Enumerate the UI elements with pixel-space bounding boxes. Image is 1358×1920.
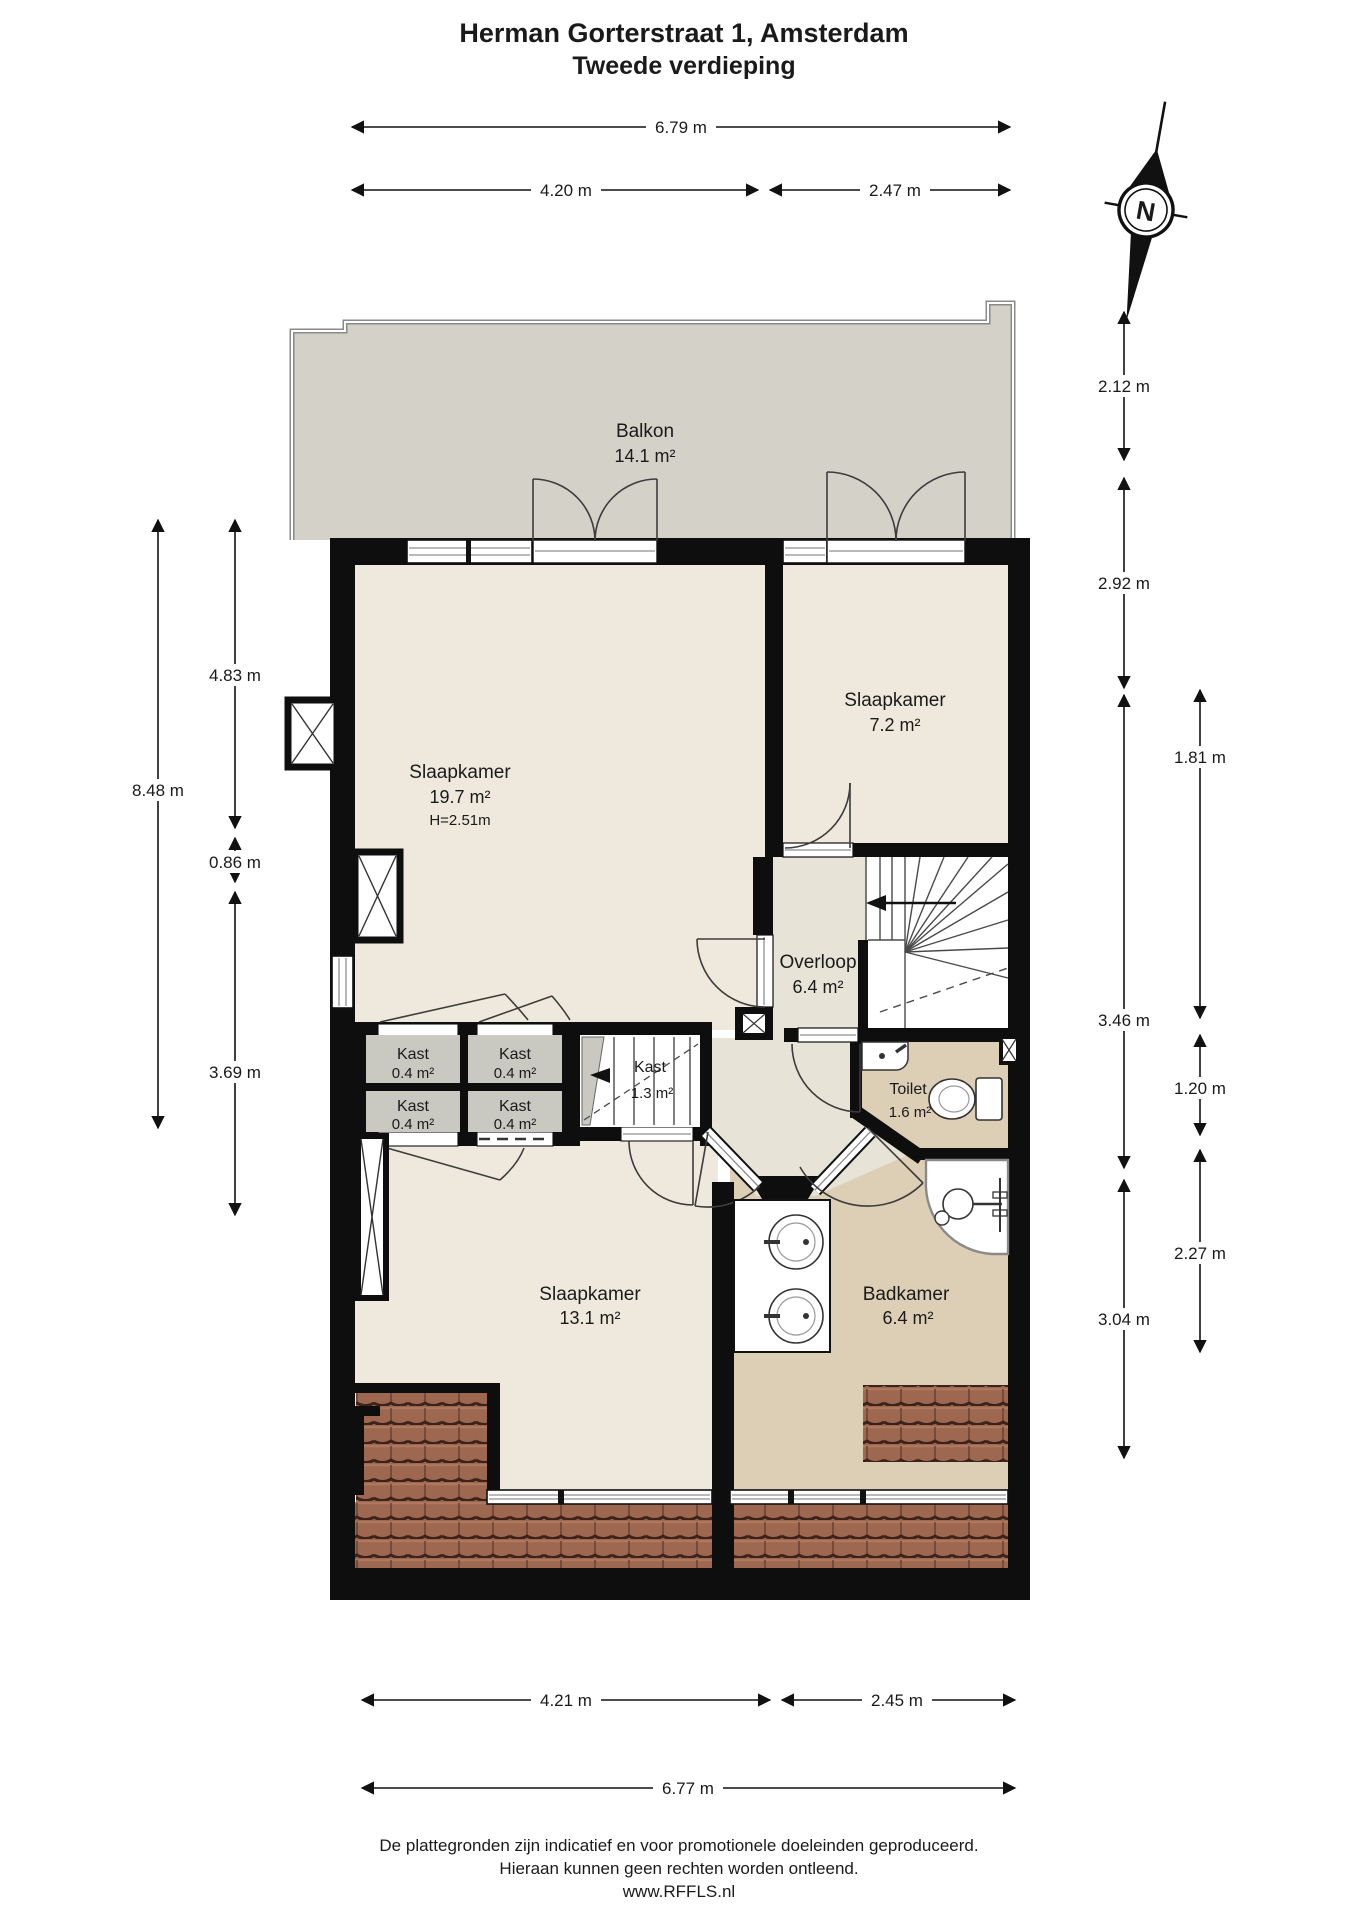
footer-line2: Hieraan kunnen geen rechten worden ontle… xyxy=(499,1859,858,1878)
dim-bottom-right: 2.45 m xyxy=(782,1689,1015,1711)
dim-top-left: 4.20 m xyxy=(352,179,758,201)
slaapkamer-voor-height: H=2.51m xyxy=(429,812,490,829)
dim-bottom-total: 6.77 m xyxy=(362,1777,1015,1799)
dim-right-outer-2: 1.20 m xyxy=(1165,1035,1235,1135)
dim-right-4: 3.04 m xyxy=(1089,1180,1159,1458)
slaapkamer-achter-name: Slaapkamer xyxy=(539,1284,641,1305)
toilet-fixture xyxy=(929,1078,1002,1120)
svg-text:2.47 m: 2.47 m xyxy=(869,181,921,200)
shaft-west-outer xyxy=(288,700,337,767)
kast-br-name: Kast xyxy=(499,1098,532,1115)
dim-left-1: 4.83 m xyxy=(200,520,270,828)
window-south-left xyxy=(407,540,532,563)
dim-right-1: 2.12 m xyxy=(1089,312,1159,460)
dim-top-right: 2.47 m xyxy=(770,179,1010,201)
kast-groot-interior xyxy=(580,1035,700,1127)
svg-text:0.86 m: 0.86 m xyxy=(209,853,261,872)
window-south-right xyxy=(783,540,827,563)
svg-text:4.83 m: 4.83 m xyxy=(209,666,261,685)
roof-left-strip xyxy=(355,1502,718,1568)
balkon-area: 14.1 m² xyxy=(614,446,675,466)
roof-right-upper xyxy=(863,1385,1008,1462)
footer-block: De plattegronden zijn indicatief en voor… xyxy=(379,1836,978,1901)
svg-text:3.69 m: 3.69 m xyxy=(209,1063,261,1082)
staircase xyxy=(866,857,1008,1028)
footer-line1: De plattegronden zijn indicatief en voor… xyxy=(379,1836,978,1855)
threshold-slaapkamer1 xyxy=(757,935,773,1007)
floorplan-page: Balkon 14.1 m² Slaapkamer 19.7 m² H=2.51… xyxy=(0,0,1358,1920)
dim-right-3: 3.46 m xyxy=(1089,695,1159,1168)
shaft-east xyxy=(1001,1037,1018,1063)
threshold-kast-tl xyxy=(378,1024,458,1036)
slaapkamer-rechts-area: 7.2 m² xyxy=(869,715,920,735)
kast-tl-area: 0.4 m² xyxy=(392,1065,435,1082)
kast-tr-name: Kast xyxy=(499,1046,532,1063)
window-west xyxy=(332,956,353,1008)
svg-text:1.81 m: 1.81 m xyxy=(1174,748,1226,767)
double-sink-unit xyxy=(734,1200,830,1352)
badkamer-area: 6.4 m² xyxy=(882,1308,933,1328)
shaft-west-inner xyxy=(355,852,400,940)
window-bottom-left xyxy=(487,1490,712,1504)
toilet-name: Toilet xyxy=(889,1081,927,1098)
svg-text:8.48 m: 8.48 m xyxy=(132,781,184,800)
svg-text:4.21 m: 4.21 m xyxy=(540,1691,592,1710)
dim-right-outer-3: 2.27 m xyxy=(1165,1150,1235,1352)
slaapkamer-voor-name: Slaapkamer xyxy=(409,762,511,783)
roof-right-strip xyxy=(730,1502,1008,1568)
title-block: Herman Gorterstraat 1, Amsterdam Tweede … xyxy=(459,18,908,80)
kast-bl-area: 0.4 m² xyxy=(392,1116,435,1133)
kast-groot-name: Kast xyxy=(634,1059,667,1076)
shaft-overloop xyxy=(741,1012,767,1035)
slaapkamer-achter-area: 13.1 m² xyxy=(559,1308,620,1328)
slaapkamer-voor-floor xyxy=(352,562,768,1030)
page-title: Herman Gorterstraat 1, Amsterdam xyxy=(459,18,908,48)
svg-text:6.79 m: 6.79 m xyxy=(655,118,707,137)
svg-text:2.92 m: 2.92 m xyxy=(1098,574,1150,593)
window-bottom-right xyxy=(730,1490,1008,1504)
kast-tl-name: Kast xyxy=(397,1046,430,1063)
footer-line3: www.RFFLS.nl xyxy=(622,1882,735,1901)
roof-left-upper xyxy=(356,1385,487,1502)
slaapkamer-rechts-name: Slaapkamer xyxy=(844,690,946,711)
svg-text:3.46 m: 3.46 m xyxy=(1098,1011,1150,1030)
kast-groot-area: 1.3 m² xyxy=(631,1085,674,1102)
kast-bl-name: Kast xyxy=(397,1098,430,1115)
threshold-kast-tr xyxy=(477,1024,553,1036)
dim-left-3: 3.69 m xyxy=(200,892,270,1215)
dim-bottom-left: 4.21 m xyxy=(362,1689,770,1711)
svg-text:2.12 m: 2.12 m xyxy=(1098,377,1150,396)
kast-br-area: 0.4 m² xyxy=(494,1116,537,1133)
toilet-area: 1.6 m² xyxy=(889,1104,932,1121)
floorplan-canvas: Balkon 14.1 m² Slaapkamer 19.7 m² H=2.51… xyxy=(0,0,1358,1920)
balkon-name: Balkon xyxy=(616,421,674,442)
threshold-kast-bl xyxy=(378,1132,458,1146)
compass-icon: N xyxy=(1085,94,1206,327)
dim-top-total: 6.79 m xyxy=(352,116,1010,138)
dim-right-outer-1: 1.81 m xyxy=(1165,690,1235,1018)
svg-text:4.20 m: 4.20 m xyxy=(540,181,592,200)
badkamer-name: Badkamer xyxy=(863,1284,950,1305)
sliding-door-kast-br xyxy=(477,1132,553,1146)
dim-left-2: 0.86 m xyxy=(200,838,270,882)
svg-text:2.45 m: 2.45 m xyxy=(871,1691,923,1710)
kast-tr-area: 0.4 m² xyxy=(494,1065,537,1082)
svg-text:6.77 m: 6.77 m xyxy=(662,1779,714,1798)
slaapkamer-voor-area: 19.7 m² xyxy=(429,787,490,807)
shaft-slaapkamer-achter xyxy=(358,1136,386,1298)
dim-right-2: 2.92 m xyxy=(1089,478,1159,688)
dim-left-total: 8.48 m xyxy=(123,520,193,1128)
overloop-name: Overloop xyxy=(779,952,856,973)
svg-text:3.04 m: 3.04 m xyxy=(1098,1310,1150,1329)
toilet-sink xyxy=(862,1042,908,1070)
svg-text:1.20 m: 1.20 m xyxy=(1174,1079,1226,1098)
overloop-area: 6.4 m² xyxy=(792,977,843,997)
page-subtitle: Tweede verdieping xyxy=(572,52,795,80)
svg-text:2.27 m: 2.27 m xyxy=(1174,1244,1226,1263)
